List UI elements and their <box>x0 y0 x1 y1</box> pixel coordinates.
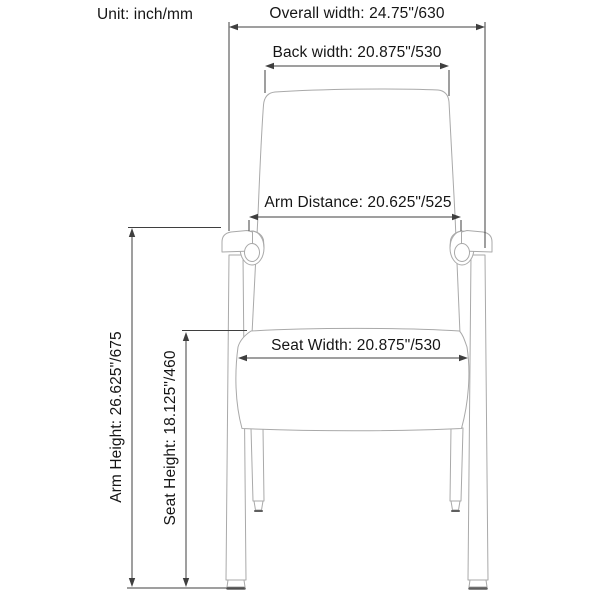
seat-height-arrow-top <box>183 332 189 341</box>
diagram-canvas: Unit: inch/mm Overall width: 24.75"/630 … <box>0 0 600 600</box>
arm-height-arrow-top <box>129 228 135 237</box>
seat-width-label: Seat Width: 20.875"/530 <box>271 337 441 354</box>
chair-dimension-diagram: Unit: inch/mm Overall width: 24.75"/630 … <box>0 0 600 600</box>
back-width-arrow-left <box>265 63 274 69</box>
overall-width-arrow-left <box>229 24 238 30</box>
back-width-arrow-right <box>440 63 449 69</box>
overall-width-label: Overall width: 24.75"/630 <box>269 5 444 22</box>
back-width-label: Back width: 20.875"/530 <box>273 44 442 61</box>
arm-distance-label: Arm Distance: 20.625"/525 <box>264 194 451 211</box>
overall-width-arrow-right <box>476 24 485 30</box>
unit-label: Unit: inch/mm <box>97 6 193 23</box>
seat-height-arrow-bottom <box>183 578 189 587</box>
seat-height-label: Seat Height: 18.125"/460 <box>162 350 179 525</box>
arm-height-label: Arm Height: 26.625"/675 <box>108 331 125 503</box>
arm-height-arrow-bottom <box>129 578 135 587</box>
backrest <box>252 89 460 334</box>
arm-distance-arrow-left <box>249 214 258 220</box>
arm-distance-arrow-right <box>452 214 461 220</box>
